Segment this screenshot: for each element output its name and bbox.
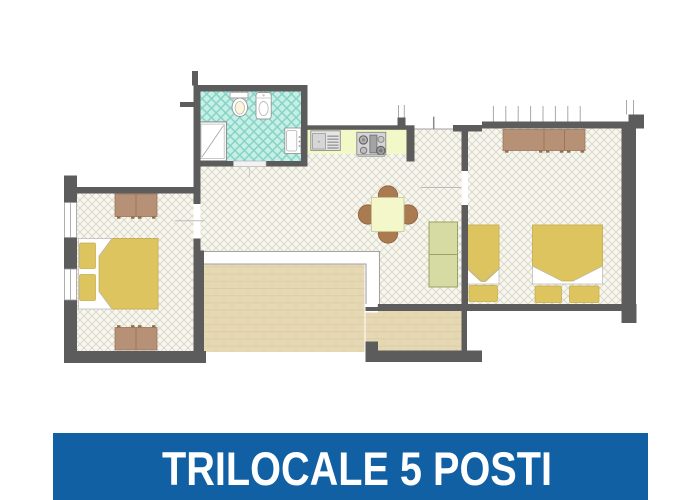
svg-text:TRILOCALE 5 POSTI: TRILOCALE 5 POSTI: [162, 442, 552, 495]
